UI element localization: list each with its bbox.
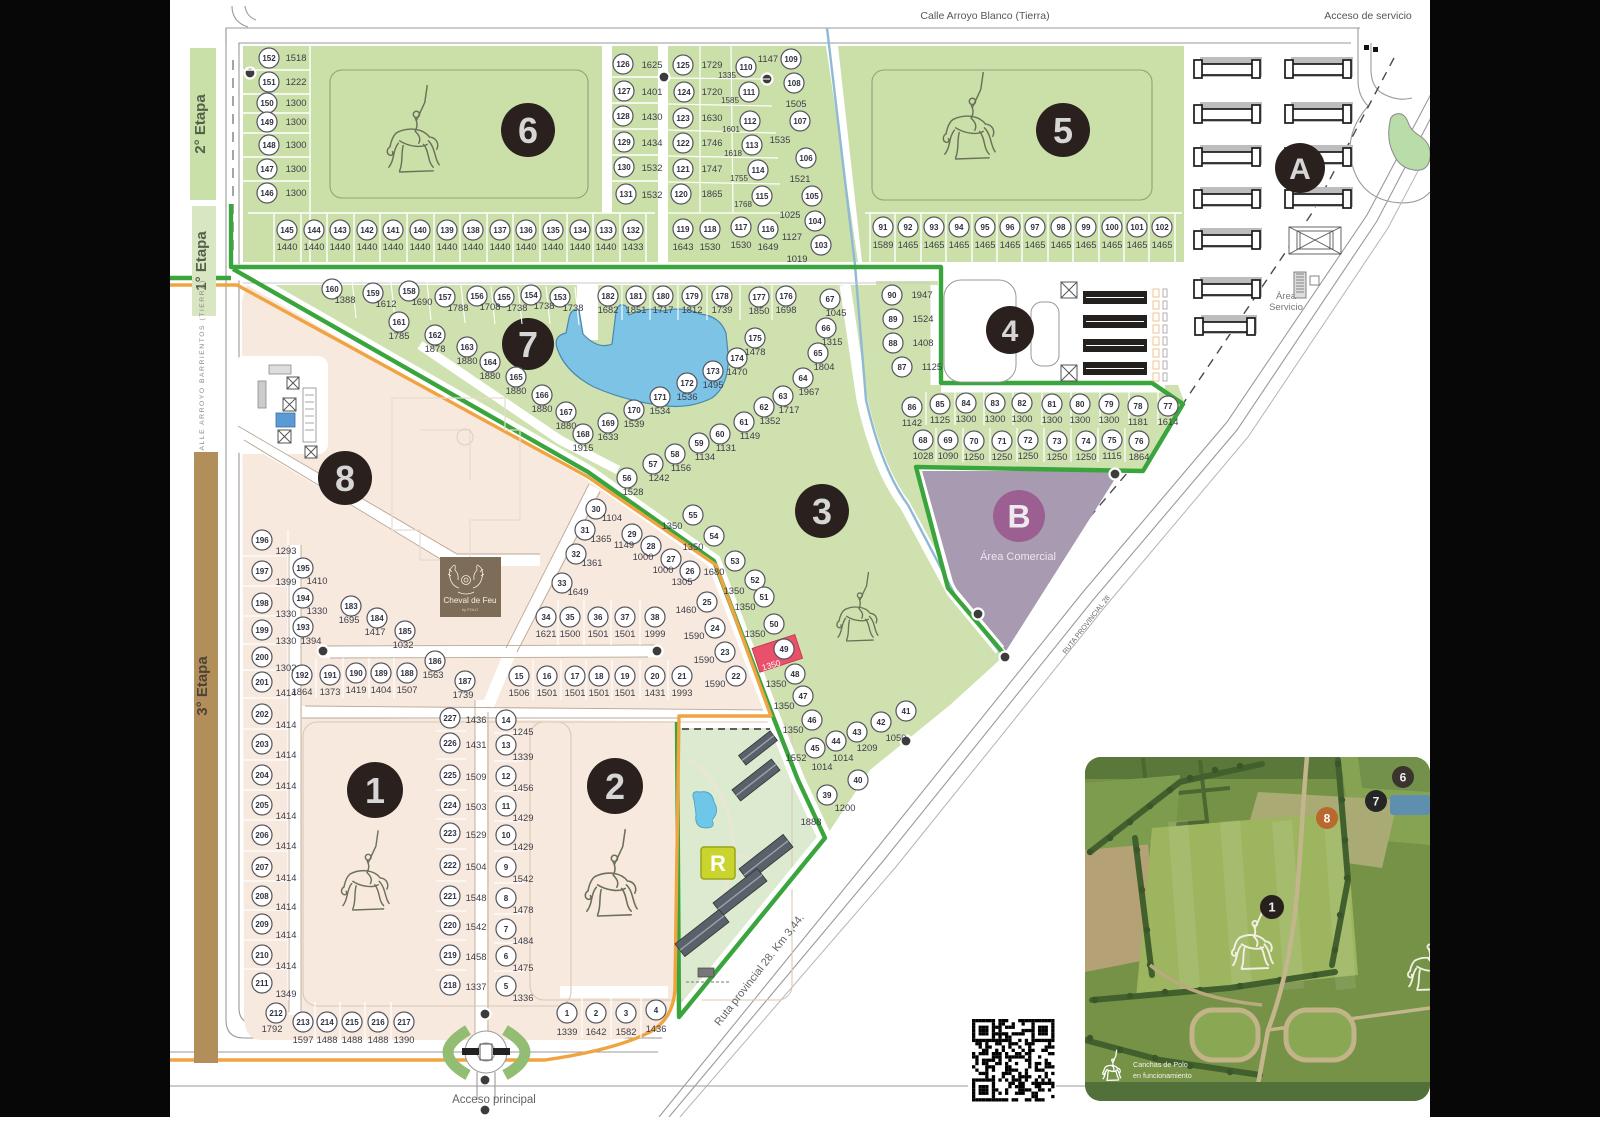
svg-text:77: 77 xyxy=(1164,402,1173,411)
svg-text:20: 20 xyxy=(651,672,660,681)
svg-text:122: 122 xyxy=(676,139,690,148)
svg-text:222: 222 xyxy=(443,861,457,870)
svg-text:1300: 1300 xyxy=(1099,414,1120,425)
svg-text:1025: 1025 xyxy=(780,209,801,220)
svg-text:1: 1 xyxy=(1268,900,1275,915)
svg-text:1414: 1414 xyxy=(276,901,297,912)
svg-text:117: 117 xyxy=(735,223,748,232)
svg-text:158: 158 xyxy=(402,287,416,296)
svg-text:1125: 1125 xyxy=(922,361,942,372)
svg-text:1414: 1414 xyxy=(276,929,297,940)
svg-text:71: 71 xyxy=(998,437,1007,446)
svg-text:88: 88 xyxy=(889,339,898,348)
svg-text:103: 103 xyxy=(814,241,828,250)
svg-text:128: 128 xyxy=(616,112,630,121)
svg-text:115: 115 xyxy=(756,192,769,201)
svg-text:1350: 1350 xyxy=(683,541,704,552)
svg-text:189: 189 xyxy=(374,669,388,678)
svg-text:1417: 1417 xyxy=(365,626,386,637)
svg-text:120: 120 xyxy=(674,190,688,199)
svg-text:1050: 1050 xyxy=(886,732,907,743)
svg-text:102: 102 xyxy=(1155,223,1169,232)
svg-text:1708: 1708 xyxy=(480,301,501,312)
svg-text:89: 89 xyxy=(889,315,898,324)
svg-text:1501: 1501 xyxy=(589,687,610,698)
svg-text:1250: 1250 xyxy=(1018,450,1039,461)
svg-text:1465: 1465 xyxy=(1051,239,1072,250)
svg-text:193: 193 xyxy=(296,623,310,632)
svg-text:1649: 1649 xyxy=(568,586,589,597)
svg-text:1300: 1300 xyxy=(1042,414,1063,425)
svg-text:1528: 1528 xyxy=(623,486,644,497)
svg-text:1365: 1365 xyxy=(591,533,612,544)
svg-text:1501: 1501 xyxy=(615,687,636,698)
svg-text:1864: 1864 xyxy=(292,686,313,697)
svg-text:68: 68 xyxy=(919,436,928,445)
svg-text:26: 26 xyxy=(686,567,695,576)
svg-text:226: 226 xyxy=(443,739,457,748)
svg-text:2° Etapa: 2° Etapa xyxy=(192,94,209,154)
svg-text:1915: 1915 xyxy=(573,442,594,453)
svg-text:156: 156 xyxy=(470,292,484,301)
svg-text:1142: 1142 xyxy=(902,417,922,428)
svg-text:81: 81 xyxy=(1048,400,1057,409)
svg-text:1478: 1478 xyxy=(745,346,766,357)
svg-text:56: 56 xyxy=(623,474,632,483)
svg-text:1293: 1293 xyxy=(276,545,297,556)
svg-text:98: 98 xyxy=(1057,223,1066,232)
svg-text:1410: 1410 xyxy=(307,575,328,586)
svg-text:1245: 1245 xyxy=(513,726,534,737)
svg-text:5: 5 xyxy=(1053,110,1073,151)
svg-text:131: 131 xyxy=(619,190,633,199)
svg-text:49: 49 xyxy=(780,645,789,654)
svg-text:1548: 1548 xyxy=(466,892,487,903)
svg-text:126: 126 xyxy=(616,60,630,69)
svg-text:181: 181 xyxy=(629,292,643,301)
svg-text:116: 116 xyxy=(762,225,775,234)
svg-text:1509: 1509 xyxy=(466,771,487,782)
svg-text:211: 211 xyxy=(256,979,269,988)
svg-text:1440: 1440 xyxy=(463,241,484,252)
svg-text:1339: 1339 xyxy=(557,1026,578,1037)
svg-text:118: 118 xyxy=(704,225,717,234)
svg-text:1465: 1465 xyxy=(898,239,919,250)
svg-text:1465: 1465 xyxy=(1025,239,1046,250)
svg-text:1350: 1350 xyxy=(766,678,787,689)
svg-text:93: 93 xyxy=(930,223,939,232)
svg-text:69: 69 xyxy=(944,436,953,445)
svg-text:31: 31 xyxy=(581,526,590,535)
svg-text:157: 157 xyxy=(438,293,452,302)
svg-text:227: 227 xyxy=(443,714,457,723)
svg-text:1597: 1597 xyxy=(293,1034,314,1045)
svg-text:1633: 1633 xyxy=(598,431,619,442)
svg-text:1250: 1250 xyxy=(1047,451,1068,462)
svg-text:3: 3 xyxy=(812,491,832,532)
svg-text:1542: 1542 xyxy=(466,921,487,932)
svg-text:178: 178 xyxy=(715,292,729,301)
svg-text:95: 95 xyxy=(981,223,990,232)
svg-text:83: 83 xyxy=(991,399,1000,408)
svg-text:R: R xyxy=(710,851,726,876)
svg-text:214: 214 xyxy=(320,1018,334,1027)
svg-text:1563: 1563 xyxy=(423,669,444,680)
svg-text:1851: 1851 xyxy=(626,304,647,315)
svg-text:213: 213 xyxy=(296,1018,310,1027)
svg-text:CALLE ARROYO BARRIENTOS (TI: CALLE ARROYO BARRIENTOS (TIERRA) xyxy=(199,279,206,457)
svg-text:205: 205 xyxy=(255,801,269,810)
svg-text:1300: 1300 xyxy=(286,116,307,127)
svg-text:1149: 1149 xyxy=(614,539,634,550)
svg-text:224: 224 xyxy=(443,801,457,810)
svg-text:172: 172 xyxy=(680,379,694,388)
svg-text:1465: 1465 xyxy=(975,239,996,250)
svg-text:161: 161 xyxy=(392,318,406,327)
svg-text:1250: 1250 xyxy=(964,451,985,462)
svg-text:80: 80 xyxy=(1076,400,1085,409)
svg-text:149: 149 xyxy=(260,118,274,127)
svg-text:130: 130 xyxy=(617,163,631,172)
svg-text:1618: 1618 xyxy=(724,149,742,158)
svg-text:147: 147 xyxy=(260,165,274,174)
svg-text:55: 55 xyxy=(689,511,698,520)
svg-text:203: 203 xyxy=(255,740,269,749)
svg-text:1552: 1552 xyxy=(786,752,807,763)
svg-text:75: 75 xyxy=(1108,436,1117,445)
svg-text:1518: 1518 xyxy=(286,52,307,63)
svg-text:1181: 1181 xyxy=(1128,416,1148,427)
svg-text:1300: 1300 xyxy=(1070,414,1091,425)
svg-text:105: 105 xyxy=(805,192,819,201)
svg-text:159: 159 xyxy=(366,289,380,298)
svg-text:141: 141 xyxy=(386,226,400,235)
svg-text:1682: 1682 xyxy=(598,304,619,315)
svg-text:202: 202 xyxy=(255,710,269,719)
svg-text:Área Comercial: Área Comercial xyxy=(980,550,1056,563)
svg-text:1440: 1440 xyxy=(277,241,298,252)
svg-text:73: 73 xyxy=(1053,437,1062,446)
svg-text:1642: 1642 xyxy=(586,1026,607,1037)
svg-text:1739: 1739 xyxy=(453,689,474,700)
svg-text:200: 200 xyxy=(255,653,269,662)
svg-text:1339: 1339 xyxy=(513,751,534,762)
svg-text:1388: 1388 xyxy=(335,294,356,305)
svg-text:1390: 1390 xyxy=(394,1034,415,1045)
svg-text:62: 62 xyxy=(760,403,769,412)
svg-text:39: 39 xyxy=(823,791,832,800)
svg-text:192: 192 xyxy=(295,671,309,680)
svg-text:215: 215 xyxy=(345,1018,359,1027)
svg-text:79: 79 xyxy=(1105,400,1114,409)
svg-text:1330: 1330 xyxy=(276,608,297,619)
svg-text:13: 13 xyxy=(502,741,511,750)
svg-text:17: 17 xyxy=(571,672,580,681)
svg-text:1804: 1804 xyxy=(814,361,835,372)
svg-text:198: 198 xyxy=(255,599,269,608)
svg-text:Acceso principal: Acceso principal xyxy=(452,1094,536,1106)
svg-text:1222: 1222 xyxy=(286,76,307,87)
svg-text:1967: 1967 xyxy=(799,386,820,397)
svg-text:1504: 1504 xyxy=(466,861,487,872)
svg-text:138: 138 xyxy=(466,226,480,235)
svg-text:16: 16 xyxy=(543,672,552,681)
svg-text:1431: 1431 xyxy=(645,687,666,698)
svg-text:151: 151 xyxy=(262,78,276,87)
svg-text:184: 184 xyxy=(370,614,384,623)
svg-text:127: 127 xyxy=(617,87,631,96)
svg-text:1747: 1747 xyxy=(702,163,723,174)
svg-text:1430: 1430 xyxy=(642,111,663,122)
svg-text:1300: 1300 xyxy=(286,139,307,150)
svg-text:15: 15 xyxy=(515,672,524,681)
svg-text:1864: 1864 xyxy=(1129,451,1150,462)
svg-text:96: 96 xyxy=(1006,223,1015,232)
svg-text:1300: 1300 xyxy=(286,97,307,108)
svg-text:1440: 1440 xyxy=(383,241,404,252)
svg-text:1488: 1488 xyxy=(342,1034,363,1045)
svg-text:1788: 1788 xyxy=(448,302,469,313)
svg-text:1090: 1090 xyxy=(938,450,959,461)
svg-text:168: 168 xyxy=(576,430,590,439)
svg-text:1045: 1045 xyxy=(826,307,847,318)
svg-text:162: 162 xyxy=(428,331,442,340)
svg-text:1695: 1695 xyxy=(339,614,360,625)
svg-text:1115: 1115 xyxy=(1102,450,1121,461)
svg-text:1717: 1717 xyxy=(653,304,674,315)
svg-text:1436: 1436 xyxy=(646,1023,667,1034)
svg-text:6: 6 xyxy=(518,110,538,151)
svg-text:223: 223 xyxy=(443,829,457,838)
svg-text:99: 99 xyxy=(1082,223,1091,232)
svg-text:65: 65 xyxy=(814,349,823,358)
svg-text:30: 30 xyxy=(592,505,601,514)
svg-text:145: 145 xyxy=(280,226,294,235)
svg-text:1612: 1612 xyxy=(376,298,397,309)
svg-text:124: 124 xyxy=(677,88,691,97)
svg-text:1717: 1717 xyxy=(779,404,800,415)
svg-text:1501: 1501 xyxy=(537,687,558,698)
svg-text:220: 220 xyxy=(443,921,457,930)
svg-text:23: 23 xyxy=(721,648,730,657)
svg-text:111: 111 xyxy=(743,88,756,97)
svg-text:140: 140 xyxy=(413,226,427,235)
svg-text:1440: 1440 xyxy=(304,241,325,252)
svg-text:1880: 1880 xyxy=(506,385,527,396)
svg-text:1532: 1532 xyxy=(642,162,663,173)
svg-text:176: 176 xyxy=(779,292,793,301)
svg-text:47: 47 xyxy=(799,692,808,701)
svg-text:1621: 1621 xyxy=(536,628,557,639)
svg-text:1460: 1460 xyxy=(676,604,697,615)
svg-text:27: 27 xyxy=(667,555,676,564)
svg-text:1250: 1250 xyxy=(1076,451,1097,462)
svg-text:1643: 1643 xyxy=(673,241,694,252)
svg-text:8: 8 xyxy=(504,894,509,903)
svg-text:1999: 1999 xyxy=(645,628,666,639)
svg-text:1336: 1336 xyxy=(513,992,534,1003)
svg-text:1242: 1242 xyxy=(649,472,670,483)
svg-text:1399: 1399 xyxy=(276,576,297,587)
svg-text:1880: 1880 xyxy=(532,403,553,414)
svg-text:78: 78 xyxy=(1134,402,1143,411)
svg-text:1429: 1429 xyxy=(513,812,534,823)
svg-text:1465: 1465 xyxy=(949,239,970,250)
svg-text:1014: 1014 xyxy=(833,752,854,763)
svg-text:1530: 1530 xyxy=(700,241,721,252)
svg-text:1000: 1000 xyxy=(653,564,674,575)
svg-text:1440: 1440 xyxy=(543,241,564,252)
svg-text:1503: 1503 xyxy=(466,801,487,812)
svg-text:25: 25 xyxy=(703,598,712,607)
svg-text:Canchas de Polo: Canchas de Polo xyxy=(1133,1060,1188,1069)
svg-text:1625: 1625 xyxy=(642,59,663,70)
svg-text:10: 10 xyxy=(502,831,511,840)
svg-text:218: 218 xyxy=(443,981,457,990)
svg-text:1680: 1680 xyxy=(704,566,725,577)
svg-text:50: 50 xyxy=(770,620,779,629)
svg-text:18: 18 xyxy=(595,672,604,681)
svg-text:129: 129 xyxy=(617,138,631,147)
svg-text:1465: 1465 xyxy=(1102,239,1123,250)
svg-text:72: 72 xyxy=(1024,436,1033,445)
svg-text:51: 51 xyxy=(760,593,769,602)
svg-text:1738: 1738 xyxy=(563,302,584,313)
svg-text:113: 113 xyxy=(746,141,759,150)
svg-text:44: 44 xyxy=(832,737,841,746)
svg-text:169: 169 xyxy=(601,419,615,428)
svg-text:1149: 1149 xyxy=(740,430,760,441)
svg-text:1414: 1414 xyxy=(276,960,297,971)
svg-text:63: 63 xyxy=(779,392,788,401)
svg-text:1484: 1484 xyxy=(513,935,534,946)
svg-text:1300: 1300 xyxy=(956,413,977,424)
svg-text:38: 38 xyxy=(651,613,660,622)
svg-text:3° Etapa: 3° Etapa xyxy=(194,656,211,716)
svg-text:1880: 1880 xyxy=(556,420,577,431)
svg-text:1738: 1738 xyxy=(534,300,555,311)
svg-text:112: 112 xyxy=(744,117,757,126)
svg-text:1401: 1401 xyxy=(642,86,663,97)
svg-text:152: 152 xyxy=(262,54,276,63)
svg-text:1729: 1729 xyxy=(702,59,723,70)
svg-text:91: 91 xyxy=(879,223,888,232)
svg-text:1373: 1373 xyxy=(320,686,341,697)
svg-text:121: 121 xyxy=(676,165,690,174)
svg-text:92: 92 xyxy=(904,223,913,232)
svg-text:6: 6 xyxy=(1400,770,1407,784)
svg-text:177: 177 xyxy=(752,293,766,302)
svg-text:135: 135 xyxy=(546,226,560,235)
svg-text:1768: 1768 xyxy=(734,200,752,209)
svg-text:142: 142 xyxy=(360,226,374,235)
svg-text:1350: 1350 xyxy=(735,601,756,612)
svg-text:1649: 1649 xyxy=(758,241,779,252)
svg-text:1534: 1534 xyxy=(650,405,671,416)
svg-text:57: 57 xyxy=(649,460,658,469)
svg-text:1589: 1589 xyxy=(873,239,894,250)
svg-text:196: 196 xyxy=(255,536,269,545)
svg-text:54: 54 xyxy=(710,532,719,541)
svg-text:137: 137 xyxy=(493,226,507,235)
svg-text:48: 48 xyxy=(791,670,800,679)
svg-text:1582: 1582 xyxy=(616,1026,637,1037)
svg-text:1414: 1414 xyxy=(276,780,297,791)
svg-text:52: 52 xyxy=(751,576,760,585)
svg-text:1: 1 xyxy=(565,1009,570,1018)
svg-text:150: 150 xyxy=(260,99,274,108)
svg-text:153: 153 xyxy=(553,293,567,302)
svg-text:1880: 1880 xyxy=(480,370,501,381)
svg-text:1440: 1440 xyxy=(490,241,511,252)
svg-text:146: 146 xyxy=(260,189,274,198)
svg-text:106: 106 xyxy=(799,154,813,163)
svg-text:1131: 1131 xyxy=(716,442,736,453)
svg-text:1738: 1738 xyxy=(507,302,528,313)
svg-text:1470: 1470 xyxy=(727,366,748,377)
svg-text:3: 3 xyxy=(624,1009,629,1018)
svg-text:187: 187 xyxy=(458,677,472,686)
svg-text:1440: 1440 xyxy=(410,241,431,252)
svg-text:1465: 1465 xyxy=(1000,239,1021,250)
svg-text:1414: 1414 xyxy=(276,749,297,760)
svg-text:1440: 1440 xyxy=(357,241,378,252)
svg-text:87: 87 xyxy=(898,363,907,372)
svg-text:5: 5 xyxy=(504,982,509,991)
svg-text:209: 209 xyxy=(255,920,269,929)
svg-text:154: 154 xyxy=(524,291,538,300)
svg-text:70: 70 xyxy=(970,437,979,446)
svg-text:175: 175 xyxy=(748,334,762,343)
svg-text:1414: 1414 xyxy=(276,840,297,851)
svg-text:1104: 1104 xyxy=(602,512,622,523)
svg-text:85: 85 xyxy=(936,400,945,409)
svg-text:104: 104 xyxy=(808,217,822,226)
svg-text:1755: 1755 xyxy=(730,174,748,183)
svg-text:212: 212 xyxy=(269,1009,283,1018)
svg-text:1209: 1209 xyxy=(857,742,878,753)
svg-text:194: 194 xyxy=(296,594,310,603)
svg-text:1539: 1539 xyxy=(624,418,645,429)
svg-text:139: 139 xyxy=(440,226,454,235)
svg-text:A: A xyxy=(1289,153,1311,186)
svg-text:133: 133 xyxy=(599,226,613,235)
svg-text:148: 148 xyxy=(262,141,276,150)
svg-text:199: 199 xyxy=(255,626,269,635)
svg-text:136: 136 xyxy=(519,226,533,235)
svg-text:4: 4 xyxy=(1002,315,1019,348)
svg-text:60: 60 xyxy=(716,430,725,439)
svg-text:1500: 1500 xyxy=(560,628,581,639)
svg-text:221: 221 xyxy=(443,892,457,901)
svg-text:1501: 1501 xyxy=(588,628,609,639)
svg-text:1429: 1429 xyxy=(513,841,534,852)
svg-text:35: 35 xyxy=(566,613,575,622)
svg-text:94: 94 xyxy=(955,223,964,232)
svg-text:84: 84 xyxy=(962,399,971,408)
svg-text:1305: 1305 xyxy=(672,576,693,587)
svg-text:171: 171 xyxy=(653,393,667,402)
svg-text:22: 22 xyxy=(732,672,741,681)
svg-text:1590: 1590 xyxy=(694,654,715,665)
svg-text:8: 8 xyxy=(335,458,355,499)
svg-text:43: 43 xyxy=(853,728,862,737)
svg-text:1465: 1465 xyxy=(1127,239,1148,250)
svg-text:1156: 1156 xyxy=(671,462,691,473)
svg-text:32: 32 xyxy=(572,550,581,559)
svg-text:1739: 1739 xyxy=(712,304,733,315)
svg-text:1865: 1865 xyxy=(702,188,723,199)
